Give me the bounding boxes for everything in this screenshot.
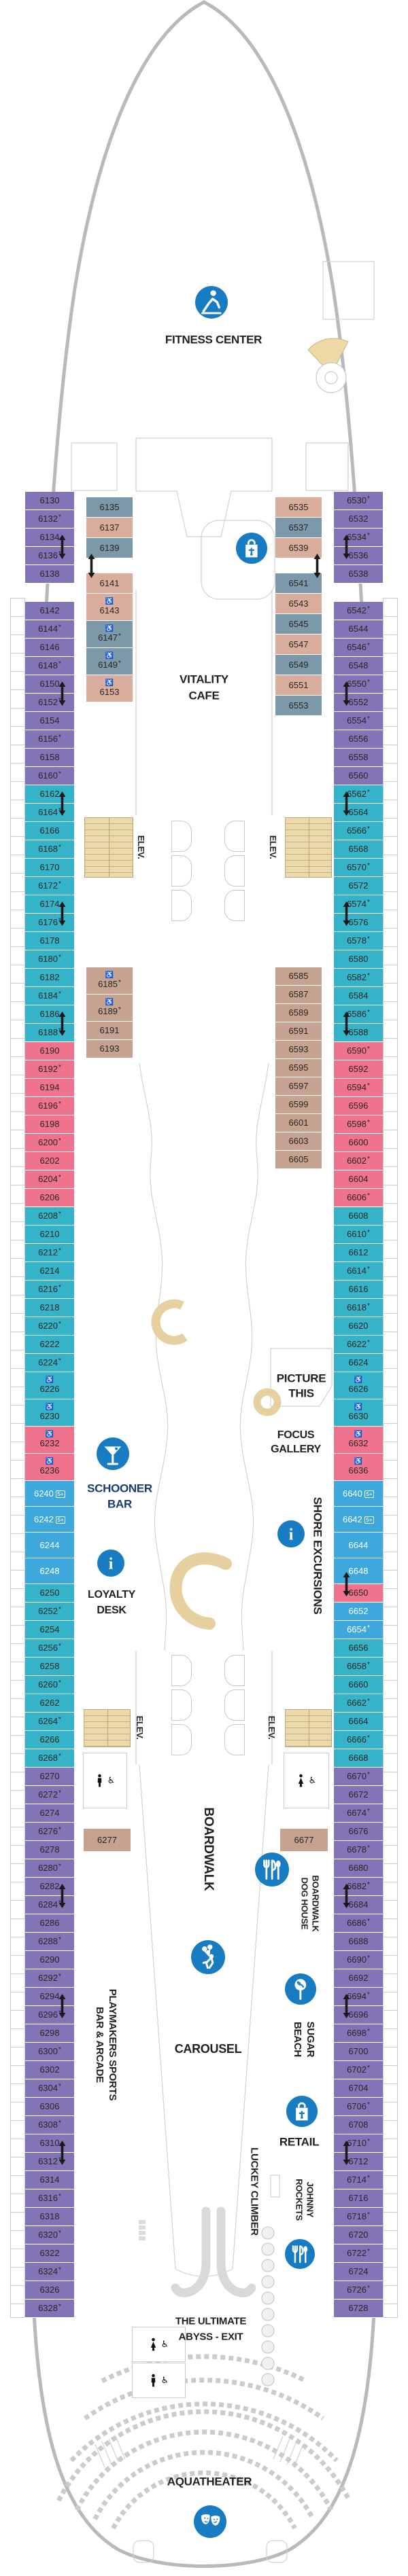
cabin-6552[interactable]: 6552 <box>334 694 383 712</box>
cabin-6232[interactable]: ♿6232 <box>25 1427 74 1454</box>
cabin-6184[interactable]: 6184* <box>25 987 74 1005</box>
cabin-6156[interactable]: 6156* <box>25 730 74 749</box>
cabin-6224[interactable]: 6224* <box>25 1354 74 1372</box>
cabin-6588[interactable]: 6588 <box>334 1024 383 1042</box>
connecting-rooms-arrow <box>343 901 350 929</box>
cabin-6189[interactable]: ♿6189* <box>86 995 133 1022</box>
cabin-6564[interactable]: 6564 <box>334 804 383 822</box>
stairs-forward-left <box>84 817 133 878</box>
cabin-6684[interactable]: 6684 <box>334 1896 383 1914</box>
cabin-6640[interactable]: 66405+ <box>334 1481 383 1507</box>
cabin-6578[interactable]: 6578* <box>334 932 383 950</box>
stairs-aft-left <box>84 1709 131 1747</box>
cabin-6284[interactable]: 6284* <box>25 1896 74 1914</box>
cabin-6574[interactable]: 6574* <box>334 895 383 914</box>
wheelchair-accessible-icon: ♿ <box>161 2376 169 2386</box>
shore-excursions-info-icon: i <box>277 1520 305 1548</box>
carousel-label: CAROUSEL <box>175 2041 242 2057</box>
cabin-6562[interactable]: 6562* <box>334 785 383 804</box>
cabin-6592[interactable]: 6592 <box>334 1060 383 1079</box>
cabin-6648[interactable]: 6648 <box>334 1558 383 1584</box>
cabin-6166[interactable]: 6166 <box>25 822 74 840</box>
cabin-6726[interactable]: 6726* <box>334 2281 383 2300</box>
cabin-6218[interactable]: 6218 <box>25 1299 74 1317</box>
cabin-6172[interactable]: 6172* <box>25 877 74 895</box>
cabin-6274[interactable]: 6274 <box>25 1804 74 1823</box>
cabin-6556[interactable]: 6556 <box>334 730 383 749</box>
cabin-6584[interactable]: 6584 <box>334 987 383 1005</box>
cabin-6160[interactable]: 6160* <box>25 767 74 785</box>
cabin-6190[interactable]: 6190 <box>25 1042 74 1060</box>
cabin-6587[interactable]: 6587 <box>275 986 322 1004</box>
carousel-icon <box>191 1940 225 1974</box>
left-outer-h: 62706272*62746276*62786280*62826284*6286… <box>25 1768 74 2318</box>
cabin-6714[interactable]: 6714* <box>334 2171 383 2189</box>
vitality-cafe-label2: CAFE <box>188 688 219 702</box>
man-figure-icon <box>95 1774 104 1787</box>
stairs-aft-right <box>285 1709 332 1747</box>
cabin-6672[interactable]: 6672 <box>334 1786 383 1804</box>
vitality-cafe-label: VITALITY <box>180 672 228 686</box>
right-inner-top: 6535653765396541654365456547654965516553 <box>275 497 322 716</box>
cabin-6302[interactable]: 6302 <box>25 2061 74 2079</box>
cabin-6650[interactable]: 6650 <box>334 1584 383 1603</box>
cabin-6260[interactable]: 6260* <box>25 1676 74 1694</box>
cabin-6158[interactable]: 6158 <box>25 749 74 767</box>
cabin-6608[interactable]: 6608 <box>334 1207 383 1226</box>
cabin-6590[interactable]: 6590* <box>334 1042 383 1060</box>
cabin-6549[interactable]: 6549 <box>275 655 322 675</box>
cabin-6188[interactable]: 6188* <box>25 1024 74 1042</box>
cabin-6620[interactable]: 6620 <box>334 1317 383 1336</box>
dog-house-label: BOARDWALK DOG HOUSE <box>299 1875 321 1931</box>
cabin-6258[interactable]: 6258 <box>25 1658 74 1676</box>
elev-label-aft-right: ELEV. <box>266 1716 277 1740</box>
cabin-6312[interactable]: 6312* <box>25 2153 74 2171</box>
cabin-6658[interactable]: 6658* <box>334 1658 383 1676</box>
cabin-6322[interactable]: 6322 <box>25 2244 74 2263</box>
cabin-6326[interactable]: 6326 <box>25 2281 74 2300</box>
elevator-door <box>171 1689 192 1721</box>
fitness-center-icon <box>195 286 228 319</box>
cabin-6542[interactable]: 6542* <box>334 602 383 620</box>
cabin-6551[interactable]: 6551 <box>275 675 322 696</box>
sugar-beach-lollipop-icon <box>285 1973 316 2005</box>
cabin-6170[interactable]: 6170 <box>25 859 74 877</box>
cabin-6696[interactable]: 6696 <box>334 2006 383 2024</box>
cabin-6216[interactable]: 6216* <box>25 1281 74 1299</box>
cabin-6296[interactable]: 6296* <box>25 2006 74 2024</box>
cabin-6718[interactable]: 6718* <box>334 2208 383 2226</box>
elevator-door <box>171 1724 192 1755</box>
cabin-6662[interactable]: 6662* <box>334 1694 383 1713</box>
cabin-6306[interactable]: 6306 <box>25 2098 74 2116</box>
cabin-6308[interactable]: 6308* <box>25 2116 74 2134</box>
cabin-6622[interactable]: 6622* <box>334 1336 383 1354</box>
cabin-6286[interactable]: 6286 <box>25 1914 74 1933</box>
cabin-6686[interactable]: 6686* <box>334 1914 383 1933</box>
cabin-6553[interactable]: 6553 <box>275 696 322 716</box>
dog-house-line1: BOARDWALK <box>309 1875 320 1931</box>
cabin-6595[interactable]: 6595 <box>275 1059 322 1077</box>
cabin-6644[interactable]: 6644 <box>334 1533 383 1558</box>
cabin-6185[interactable]: ♿6185* <box>86 967 133 995</box>
cabin-6616[interactable]: 6616 <box>334 1281 383 1299</box>
connecting-rooms-arrow <box>58 901 66 929</box>
cabin-6280[interactable]: 6280* <box>25 1859 74 1878</box>
cabin-6702[interactable]: 6702* <box>334 2061 383 2079</box>
cabin-6154[interactable]: 6154 <box>25 712 74 730</box>
right-outer-e2: ♿6632♿6636 <box>334 1427 383 1481</box>
cabin-6720[interactable]: 6720 <box>334 2226 383 2244</box>
cabin-6654[interactable]: 6654* <box>334 1621 383 1639</box>
cabin-6630[interactable]: ♿6630 <box>334 1399 383 1427</box>
ultimate-abyss-label2: ABYSS - EXIT <box>179 2331 243 2344</box>
cabin-6547[interactable]: 6547 <box>275 634 322 655</box>
cabin-6656[interactable]: 6656 <box>334 1639 383 1658</box>
retail-label: RETAIL <box>279 2134 319 2149</box>
cabin-6534[interactable]: 6534* <box>334 529 383 547</box>
cabin-6226[interactable]: ♿6226 <box>25 1372 74 1399</box>
schooner-bar-label2: BAR <box>107 1497 132 1511</box>
cabin-6585[interactable]: 6585 <box>275 967 322 986</box>
cabin-6266[interactable]: 6266 <box>25 1731 74 1749</box>
cabin-6278[interactable]: 6278 <box>25 1841 74 1859</box>
right-outer-f2: 6650 <box>334 1584 383 1603</box>
cabin-6250[interactable]: 6250 <box>25 1584 74 1603</box>
cabin-6536[interactable]: 6536 <box>334 547 383 565</box>
cabin-6304[interactable]: 6304* <box>25 2079 74 2098</box>
cabin-6532[interactable]: 6532 <box>334 510 383 529</box>
cabin-6722[interactable]: 6722* <box>334 2244 383 2263</box>
cabin-6182[interactable]: 6182 <box>25 969 74 987</box>
connecting-rooms-arrow <box>343 2141 350 2168</box>
cabin-6168[interactable]: 6168* <box>25 840 74 859</box>
cabin-6193[interactable]: 6193 <box>86 1040 133 1058</box>
cabin-6244[interactable]: 6244 <box>25 1533 74 1558</box>
cabin-6176[interactable]: 6176* <box>25 914 74 932</box>
cabin-6704[interactable]: 6704 <box>334 2079 383 2098</box>
cabin-6724[interactable]: 6724 <box>334 2263 383 2281</box>
cabin-6137[interactable]: 6137 <box>86 518 133 538</box>
connecting-rooms-arrow <box>58 1884 66 1912</box>
cabin-6572[interactable]: 6572 <box>334 877 383 895</box>
cabin-6582[interactable]: 6582* <box>334 969 383 987</box>
cabin-6610[interactable]: 6610* <box>334 1226 383 1244</box>
cabin-6142[interactable]: 6142 <box>25 602 74 620</box>
cabin-6282[interactable]: 6282 <box>25 1878 74 1896</box>
cabin-6566[interactable]: 6566* <box>334 822 383 840</box>
cabin-6535[interactable]: 6535 <box>275 497 322 518</box>
cabin-6700[interactable]: 6700 <box>334 2043 383 2061</box>
badge-5plus: 5+ <box>364 1516 374 1524</box>
cabin-6694[interactable]: 6694* <box>334 1988 383 2006</box>
cabin-6272[interactable]: 6272* <box>25 1786 74 1804</box>
cabin-6328[interactable]: 6328* <box>25 2300 74 2318</box>
connecting-rooms-arrow <box>58 1012 66 1039</box>
cabin-6191[interactable]: 6191 <box>86 1022 133 1040</box>
cabin-6728[interactable]: 6728 <box>334 2300 383 2318</box>
cabin-6666[interactable]: 6666* <box>334 1731 383 1749</box>
cabin-6568[interactable]: 6568 <box>334 840 383 859</box>
left-inner-top: 6135613761396141♿6143♿6147*♿6149*♿6153 <box>86 497 133 702</box>
wheelchair-accessible-icon: ♿ <box>161 2340 169 2350</box>
cabin-6548[interactable]: 6548 <box>334 657 383 675</box>
cabin-6230[interactable]: ♿6230 <box>25 1399 74 1427</box>
cabin-6210[interactable]: 6210 <box>25 1226 74 1244</box>
cabin-6692[interactable]: 6692 <box>334 1969 383 1988</box>
cabin-6624[interactable]: 6624 <box>334 1354 383 1372</box>
cabin-6143[interactable]: ♿6143 <box>86 594 133 621</box>
cabin-6270[interactable]: 6270 <box>25 1768 74 1786</box>
cabin-6208[interactable]: 6208* <box>25 1207 74 1226</box>
elevator-door <box>171 855 192 887</box>
cabin-6256[interactable]: 6256* <box>25 1639 74 1658</box>
cabin-6202[interactable]: 6202 <box>25 1152 74 1170</box>
cabin-6324[interactable]: 6324* <box>25 2263 74 2281</box>
cabin-6147[interactable]: ♿6147* <box>86 621 133 648</box>
svg-text:i: i <box>289 1526 294 1544</box>
cabin-6268[interactable]: 6268* <box>25 1749 74 1768</box>
cabin-6597[interactable]: 6597 <box>275 1077 322 1096</box>
cabin-6678[interactable]: 6678* <box>334 1841 383 1859</box>
cabin-6680[interactable]: 6680 <box>334 1859 383 1878</box>
right-inner-6677: 6677 <box>280 1829 328 1852</box>
cabin-6603[interactable]: 6603 <box>275 1132 322 1151</box>
cabin-6602[interactable]: 6602* <box>334 1152 383 1170</box>
connecting-rooms-arrow <box>343 1994 350 2022</box>
man-figure-icon <box>149 2374 158 2387</box>
cabin-6192[interactable]: 6192* <box>25 1060 74 1079</box>
badge-5plus: 5+ <box>56 1490 65 1498</box>
cabin-6135[interactable]: 6135 <box>86 497 133 518</box>
cabin-6716[interactable]: 6716 <box>334 2189 383 2208</box>
cabin-6596[interactable]: 6596 <box>334 1097 383 1115</box>
cabin-6538[interactable]: 6538 <box>334 565 383 584</box>
playmakers-line1: PLAYMAKERS SPORTS <box>105 1989 118 2100</box>
mens-restroom-aft: ♿ <box>132 2363 186 2398</box>
cabin-6614[interactable]: 6614* <box>334 1262 383 1281</box>
cabin-6591[interactable]: 6591 <box>275 1022 322 1041</box>
cabin-6546[interactable]: 6546* <box>334 639 383 657</box>
connecting-rooms-arrow <box>88 554 95 582</box>
elev-label-aft-left: ELEV. <box>134 1716 145 1740</box>
cabin-6599[interactable]: 6599 <box>275 1096 322 1114</box>
cabin-6652[interactable]: 6652 <box>334 1603 383 1621</box>
elevator-door <box>224 1655 245 1686</box>
right-outer-a: 6530*65326534*65366538 <box>334 492 383 584</box>
cabin-6318[interactable]: 6318 <box>25 2208 74 2226</box>
cabin-6580[interactable]: 6580 <box>334 950 383 969</box>
cabin-6598[interactable]: 6598* <box>334 1115 383 1134</box>
connecting-rooms-arrow <box>58 681 66 709</box>
cabin-6264[interactable]: 6264* <box>25 1713 74 1731</box>
elevator-door <box>224 1724 245 1755</box>
cabin-6606[interactable]: 6606* <box>334 1189 383 1207</box>
balcony-rail-left <box>10 598 25 2318</box>
cabin-6178[interactable]: 6178 <box>25 932 74 950</box>
cabin-6314[interactable]: 6314 <box>25 2171 74 2189</box>
elevator-door <box>171 890 192 921</box>
focus-gallery-label2: GALLERY <box>271 1443 321 1456</box>
wheelchair-accessible-icon: ♿ <box>309 1776 317 1786</box>
cabin-6570[interactable]: 6570* <box>334 859 383 877</box>
left-outer-f: 62405+62425+62446248 <box>25 1481 74 1584</box>
cabin-6276[interactable]: 6276* <box>25 1823 74 1841</box>
cabin-6292[interactable]: 6292* <box>25 1969 74 1988</box>
cabin-6186[interactable]: 6186 <box>25 1005 74 1024</box>
boardwalk-label: BOARDWALK <box>200 1808 216 1891</box>
cabin-6153[interactable]: ♿6153 <box>86 675 133 702</box>
johnny-rockets-line2: ROCKETS <box>293 2179 304 2220</box>
cabin-6544[interactable]: 6544 <box>334 620 383 639</box>
left-outer-e2: ♿6232♿6236 <box>25 1427 74 1481</box>
johnny-rockets-label: JOHNNY ROCKETS <box>293 2179 316 2220</box>
left-outer-e1: 6208*62106212*62146216*62186220*62226224… <box>25 1207 74 1427</box>
cabin-6149[interactable]: ♿6149* <box>86 648 133 675</box>
left-outer-b: 61426144*61466148*61506152*61546156*6158… <box>25 602 74 785</box>
cabin-6670[interactable]: 6670* <box>334 1768 383 1786</box>
cabin-6148[interactable]: 6148* <box>25 657 74 675</box>
cabin-6594[interactable]: 6594* <box>334 1079 383 1097</box>
left-outer-d: 61906192*61946196*61986200*62026204*6206 <box>25 1042 74 1207</box>
cabin-6626[interactable]: ♿6626 <box>334 1372 383 1399</box>
deck-plan: FITNESS CENTER VITALITY CAFE SCHOONER BA… <box>0 0 408 2576</box>
cabin-6242[interactable]: 62425+ <box>25 1507 74 1533</box>
cabin-6674[interactable]: 6674* <box>334 1804 383 1823</box>
cabin-6612[interactable]: 6612 <box>334 1244 383 1262</box>
cabin-6576[interactable]: 6576 <box>334 914 383 932</box>
cabin-6604[interactable]: 6604 <box>334 1170 383 1189</box>
cabin-6660[interactable]: 6660 <box>334 1676 383 1694</box>
cabin-6138[interactable]: 6138 <box>25 565 74 584</box>
cabin-6560[interactable]: 6560 <box>334 767 383 785</box>
cabin-6162[interactable]: 6162 <box>25 785 74 804</box>
cabin-6537[interactable]: 6537 <box>275 518 322 538</box>
cabin-6554[interactable]: 6554* <box>334 712 383 730</box>
cabin-6600[interactable]: 6600 <box>334 1134 383 1152</box>
cabin-6586[interactable]: 6586* <box>334 1005 383 1024</box>
cabin-6636[interactable]: ♿6636 <box>334 1454 383 1481</box>
cabin-6174[interactable]: 6174 <box>25 895 74 914</box>
cabin-6180[interactable]: 6180* <box>25 950 74 969</box>
cabin-6164[interactable]: 6164* <box>25 804 74 822</box>
left-inner-mid: ♿6185*♿6189*61916193 <box>86 967 133 1058</box>
cabin-6550[interactable]: 6550* <box>334 675 383 694</box>
cabin-6248[interactable]: 6248 <box>25 1558 74 1584</box>
cabin-6252[interactable]: 6252* <box>25 1603 74 1621</box>
cabin-6706[interactable]: 6706* <box>334 2098 383 2116</box>
woman-figure-icon <box>296 1774 305 1787</box>
cabin-6589[interactable]: 6589 <box>275 1004 322 1022</box>
cabin-6618[interactable]: 6618* <box>334 1299 383 1317</box>
cabin-6632[interactable]: ♿6632 <box>334 1427 383 1454</box>
cabin-6134[interactable]: 6134 <box>25 529 74 547</box>
cabin-6316[interactable]: 6316* <box>25 2189 74 2208</box>
wheelchair-accessible-icon: ♿ <box>107 1776 116 1786</box>
cabin-6677[interactable]: 6677 <box>280 1829 328 1852</box>
playmakers-label: PLAYMAKERS SPORTS BAR & ARCADE <box>92 1989 118 2100</box>
cabin-6688[interactable]: 6688 <box>334 1933 383 1951</box>
cabin-6200[interactable]: 6200* <box>25 1134 74 1152</box>
luckey-climber-label: LUCKEY CLIMBER <box>248 2147 260 2236</box>
cabin-6212[interactable]: 6212* <box>25 1244 74 1262</box>
cabin-6300[interactable]: 6300* <box>25 2043 74 2061</box>
elevator-door <box>171 1655 192 1686</box>
cabin-6593[interactable]: 6593 <box>275 1041 322 1059</box>
svg-text:i: i <box>109 1556 114 1573</box>
cabin-6690[interactable]: 6690* <box>334 1951 383 1969</box>
cabin-6320[interactable]: 6320* <box>25 2226 74 2244</box>
cabin-6601[interactable]: 6601 <box>275 1114 322 1132</box>
retail-bag-icon <box>286 2096 318 2127</box>
cabin-6204[interactable]: 6204* <box>25 1170 74 1189</box>
loyalty-desk-label2: DESK <box>97 1604 126 1617</box>
cabin-6642[interactable]: 66425+ <box>334 1507 383 1533</box>
cabin-6262[interactable]: 6262 <box>25 1694 74 1713</box>
cabin-6310[interactable]: 6310 <box>25 2134 74 2153</box>
cabin-6236[interactable]: ♿6236 <box>25 1454 74 1481</box>
right-inner-mid: 6585658765896591659365956597659966016603… <box>275 967 322 1169</box>
cabin-6132[interactable]: 6132* <box>25 510 74 529</box>
cabin-6220[interactable]: 6220* <box>25 1317 74 1336</box>
cabin-6277[interactable]: 6277 <box>84 1829 131 1852</box>
left-inner-6277: 6277 <box>84 1829 131 1852</box>
cabin-6198[interactable]: 6198 <box>25 1115 74 1134</box>
cabin-6298[interactable]: 6298 <box>25 2024 74 2043</box>
cabin-6150[interactable]: 6150 <box>25 675 74 694</box>
cabin-6290[interactable]: 6290 <box>25 1951 74 1969</box>
cabin-6545[interactable]: 6545 <box>275 614 322 634</box>
cabin-6136[interactable]: 6136* <box>25 547 74 565</box>
cabin-6668[interactable]: 6668 <box>334 1749 383 1768</box>
right-outer-g: 66566658*66606662*66646666*6668 <box>334 1639 383 1768</box>
cabin-6152[interactable]: 6152* <box>25 694 74 712</box>
cabin-6146[interactable]: 6146 <box>25 639 74 657</box>
sugar-beach-line1: SUGAR <box>303 2022 316 2058</box>
cabin-6240[interactable]: 62405+ <box>25 1481 74 1507</box>
cabin-6676[interactable]: 6676 <box>334 1823 383 1841</box>
cabin-6682[interactable]: 6682* <box>334 1878 383 1896</box>
cabin-6664[interactable]: 6664 <box>334 1713 383 1731</box>
schooner-bar-icon <box>97 1437 129 1470</box>
connecting-rooms-arrow <box>343 1012 350 1039</box>
elev-label-fwd-left: ELEV. <box>135 836 146 859</box>
cabin-6206[interactable]: 6206 <box>25 1189 74 1207</box>
cabin-6543[interactable]: 6543 <box>275 594 322 614</box>
cabin-6698[interactable]: 6698* <box>334 2024 383 2043</box>
cabin-6530[interactable]: 6530* <box>334 492 383 510</box>
cabin-6288[interactable]: 6288* <box>25 1933 74 1951</box>
womens-restroom-aft: ♿ <box>132 2327 186 2362</box>
cabin-6294[interactable]: 6294 <box>25 1988 74 2006</box>
cabin-6130[interactable]: 6130 <box>25 492 74 510</box>
cabin-6194[interactable]: 6194 <box>25 1079 74 1097</box>
cabin-6214[interactable]: 6214 <box>25 1262 74 1281</box>
cabin-6605[interactable]: 6605 <box>275 1151 322 1169</box>
cabin-6710[interactable]: 6710* <box>334 2134 383 2153</box>
cabin-6558[interactable]: 6558 <box>334 749 383 767</box>
cabin-6196[interactable]: 6196* <box>25 1097 74 1115</box>
dog-house-dining-icon <box>255 1853 289 1886</box>
cabin-6708[interactable]: 6708 <box>334 2116 383 2134</box>
elev-label-fwd-right: ELEV. <box>267 836 278 859</box>
cabin-6144[interactable]: 6144* <box>25 620 74 639</box>
picture-this-label: PICTURE <box>277 1371 326 1385</box>
cabin-6712[interactable]: 6712 <box>334 2153 383 2171</box>
cabin-6222[interactable]: 6222 <box>25 1336 74 1354</box>
cabin-6254[interactable]: 6254 <box>25 1621 74 1639</box>
